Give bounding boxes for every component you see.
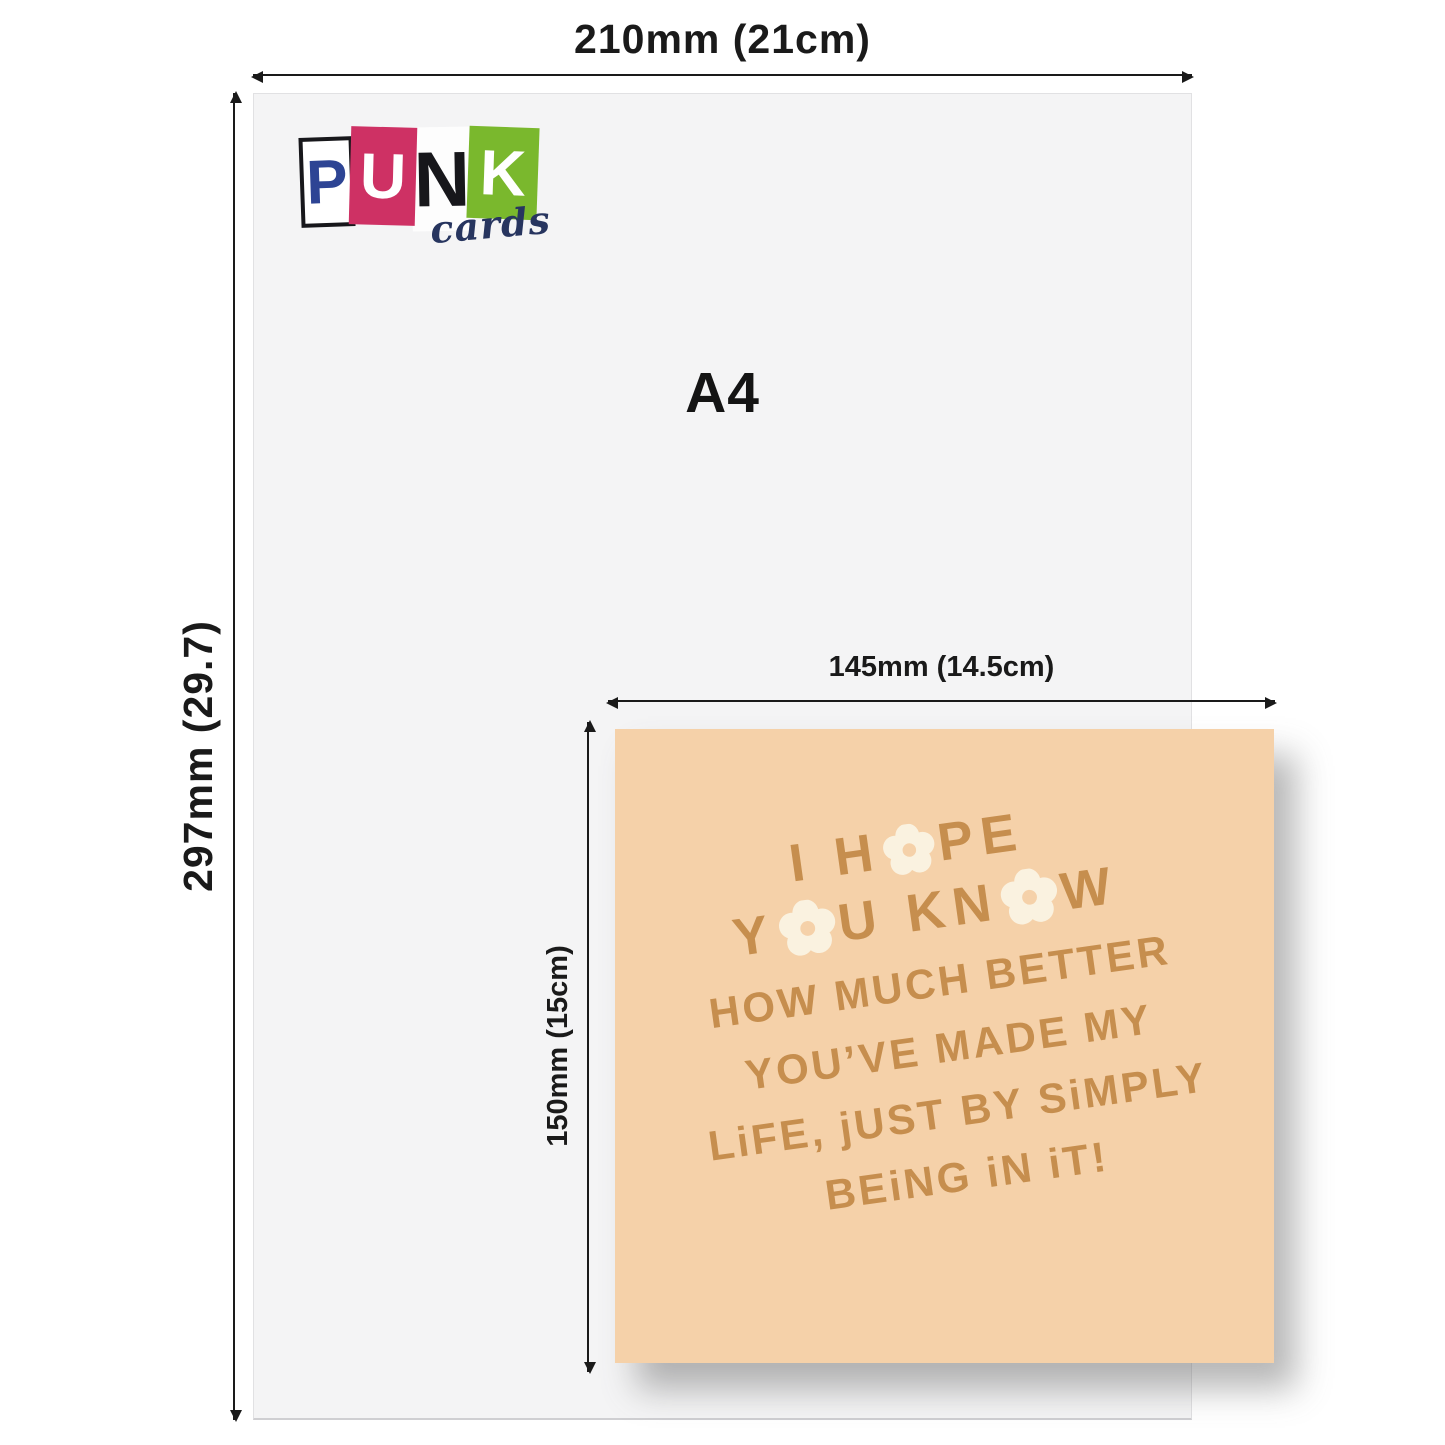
a4-width-arrow (253, 74, 1192, 76)
punk-cards-logo: P U N K cards (300, 127, 545, 237)
a4-height-dimension-label: 297mm (29.7) (175, 456, 219, 1056)
card-height-arrow (587, 722, 589, 1372)
flower-icon (775, 896, 839, 960)
flower-icon (880, 820, 939, 879)
card-height-dimension-label: 150mm (15cm) (542, 866, 576, 1226)
logo-letter-p: P (298, 136, 355, 228)
card-width-arrow (608, 700, 1275, 702)
a4-sheet-label: A4 (253, 360, 1192, 426)
size-guide-image: { "colors": { "dimension": "#1a1a1a", "s… (0, 0, 1445, 1445)
greeting-card: I HPE YU KNW HOW MUCH BETTER YOU’VE MADE… (615, 729, 1274, 1363)
logo-letter-u: U (349, 126, 418, 226)
a4-width-dimension-label: 210mm (21cm) (253, 16, 1192, 63)
flower-icon (997, 864, 1061, 928)
card-quote: I HPE YU KNW HOW MUCH BETTER YOU’VE MADE… (667, 779, 1220, 1236)
card-width-dimension-label: 145mm (14.5cm) (608, 651, 1275, 684)
a4-height-arrow (233, 93, 235, 1420)
